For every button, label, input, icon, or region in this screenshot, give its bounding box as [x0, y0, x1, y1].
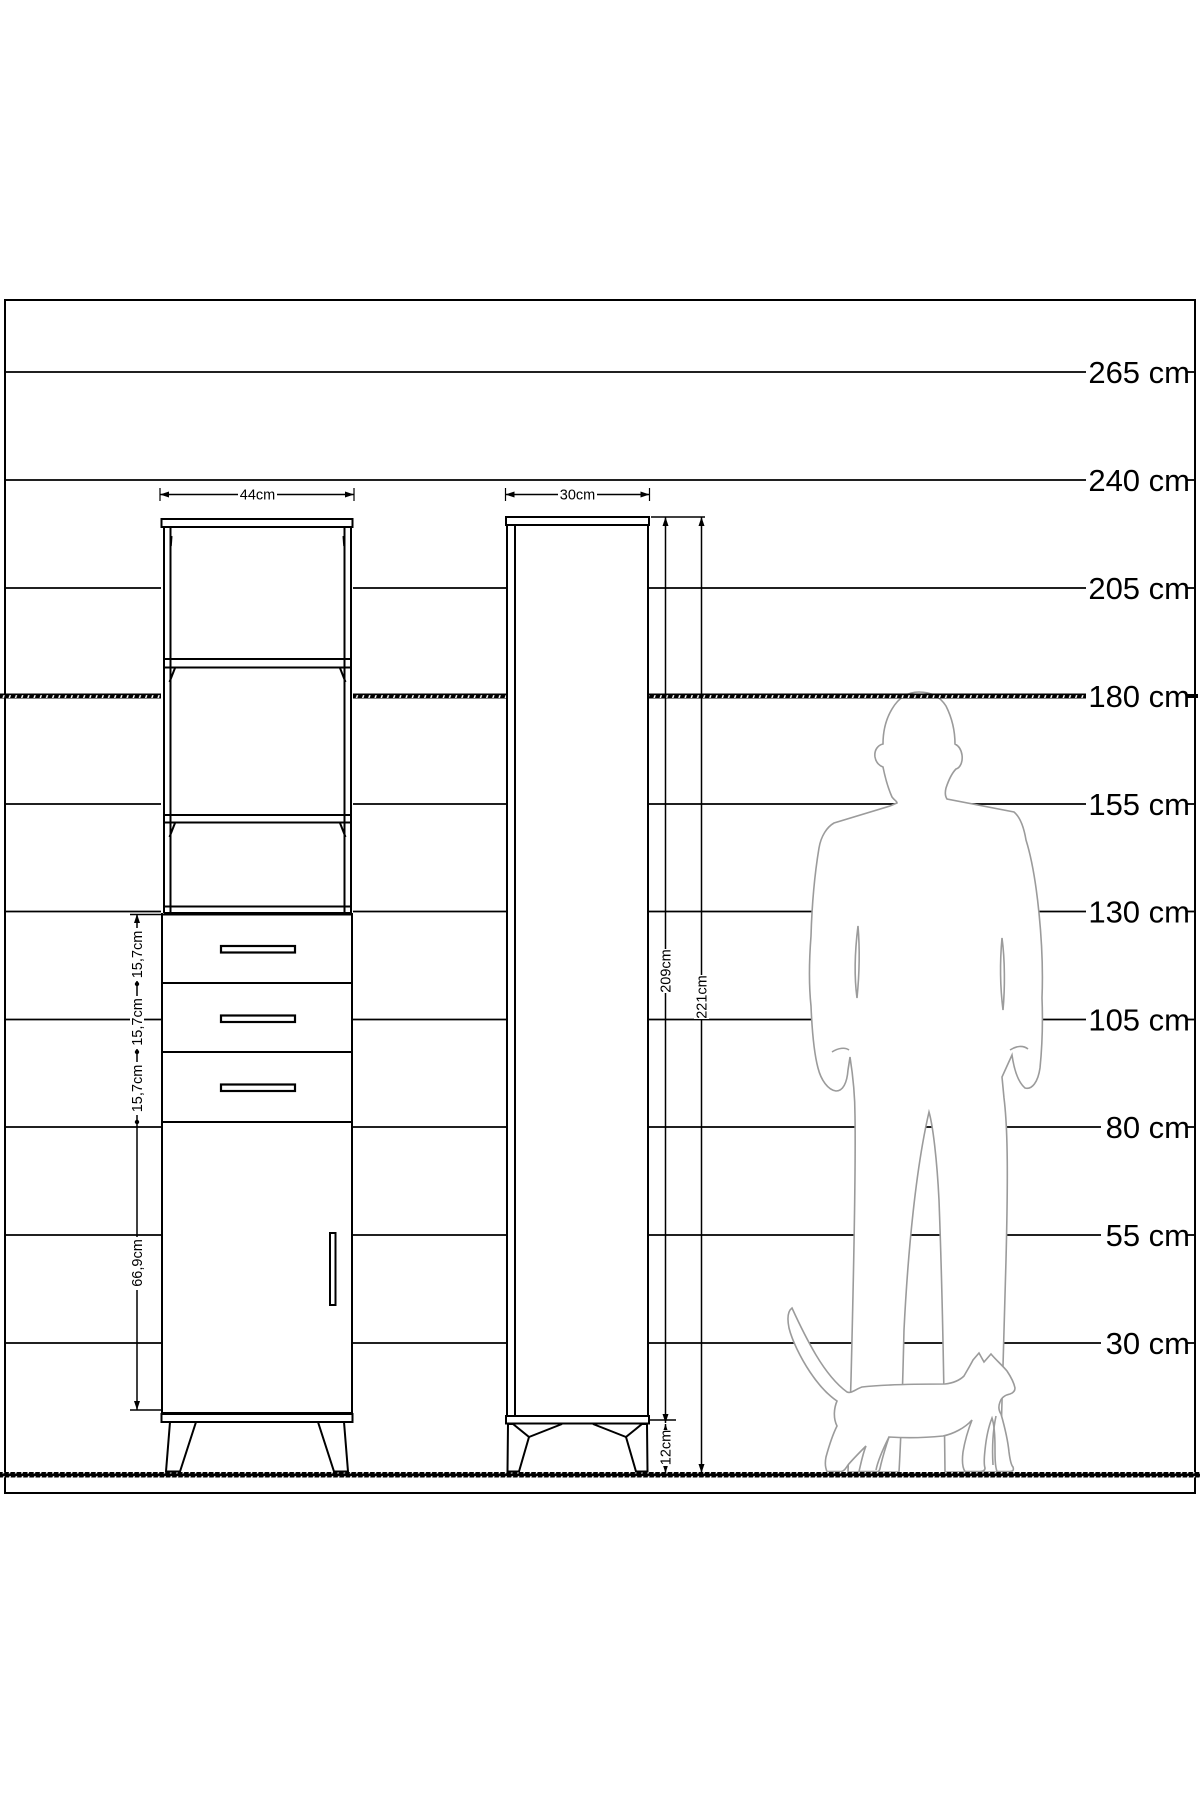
svg-text:240 cm: 240 cm [1088, 463, 1190, 498]
svg-text:209cm: 209cm [659, 949, 675, 993]
svg-text:15,7cm: 15,7cm [130, 998, 146, 1046]
svg-text:66,9cm: 66,9cm [130, 1239, 146, 1287]
svg-text:15,7cm: 15,7cm [130, 931, 146, 979]
svg-text:44cm: 44cm [240, 488, 275, 504]
svg-text:55 cm: 55 cm [1106, 1218, 1190, 1253]
svg-text:15,7cm: 15,7cm [130, 1065, 146, 1113]
svg-text:205 cm: 205 cm [1088, 571, 1190, 606]
svg-text:105 cm: 105 cm [1088, 1003, 1190, 1038]
svg-text:221cm: 221cm [695, 975, 711, 1019]
svg-text:180 cm: 180 cm [1088, 679, 1190, 714]
svg-text:80 cm: 80 cm [1106, 1110, 1190, 1145]
svg-text:12cm: 12cm [659, 1430, 675, 1465]
svg-text:155 cm: 155 cm [1088, 787, 1190, 822]
svg-text:30 cm: 30 cm [1106, 1326, 1190, 1361]
svg-text:30cm: 30cm [560, 488, 595, 504]
svg-text:130 cm: 130 cm [1088, 895, 1190, 930]
svg-text:265 cm: 265 cm [1088, 355, 1190, 390]
